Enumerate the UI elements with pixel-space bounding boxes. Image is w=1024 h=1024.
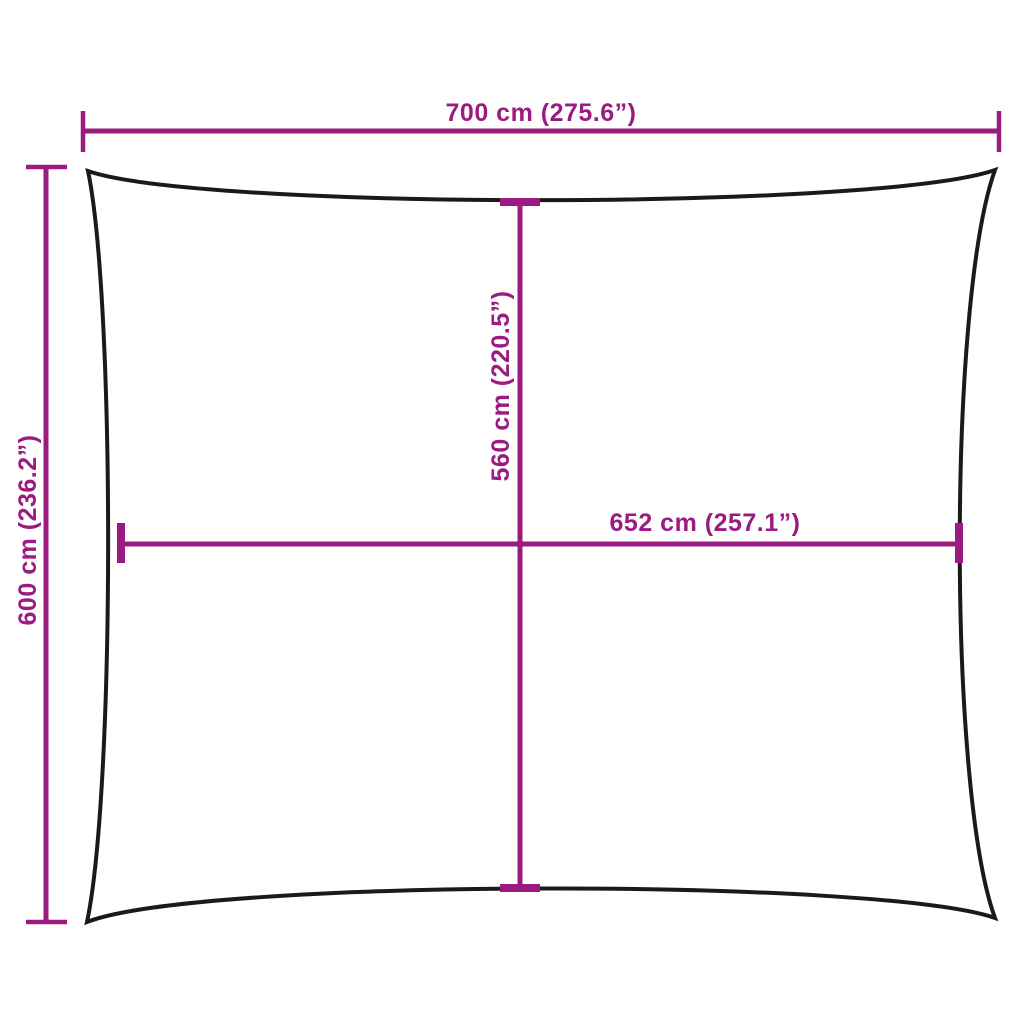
- center-width-label: 652 cm (257.1”): [610, 509, 801, 537]
- center-height-label: 560 cm (220.5”): [487, 291, 515, 482]
- left-height-label: 600 cm (236.2”): [14, 435, 42, 626]
- product-dimension-image: 700 cm (275.6”) 600 cm (236.2”) 560 cm (…: [0, 0, 1024, 1024]
- left-height-dimension: 600 cm (236.2”): [14, 167, 67, 922]
- top-width-label: 700 cm (275.6”): [446, 99, 637, 127]
- top-width-dimension: 700 cm (275.6”): [83, 99, 999, 152]
- center-width-dimension: 652 cm (257.1”): [121, 509, 959, 563]
- dimension-diagram: 700 cm (275.6”) 600 cm (236.2”) 560 cm (…: [0, 0, 1024, 1024]
